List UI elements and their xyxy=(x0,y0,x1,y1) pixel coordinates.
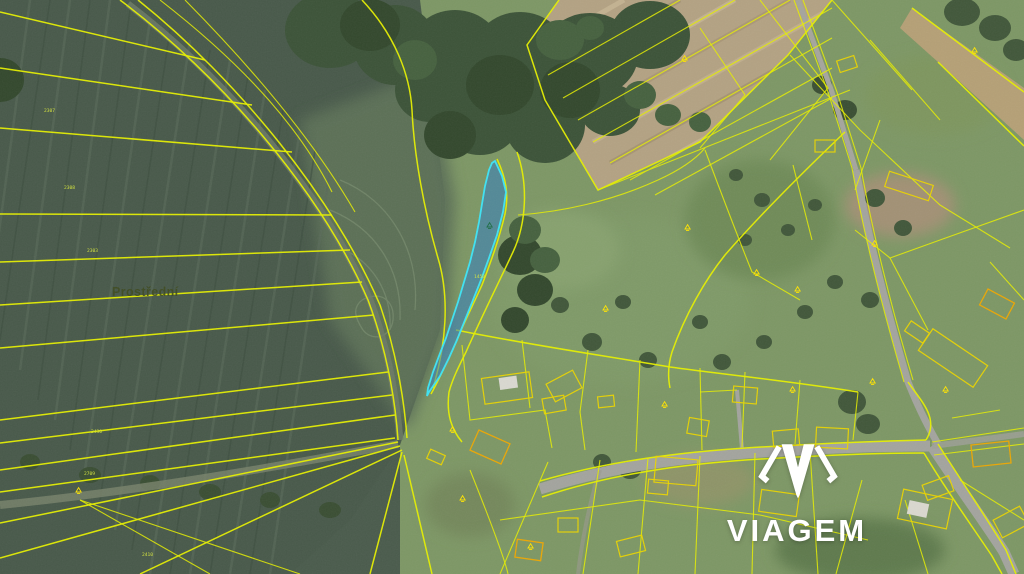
cadastral-map-viewport[interactable]: Prostřední 2307230823032430270924101450 … xyxy=(0,0,1024,574)
cadastral-map: Prostřední 2307230823032430270924101450 … xyxy=(0,0,1024,574)
viagem-brand-text: VIAGEM xyxy=(727,513,867,548)
photo-grain-overlay xyxy=(0,0,1024,574)
